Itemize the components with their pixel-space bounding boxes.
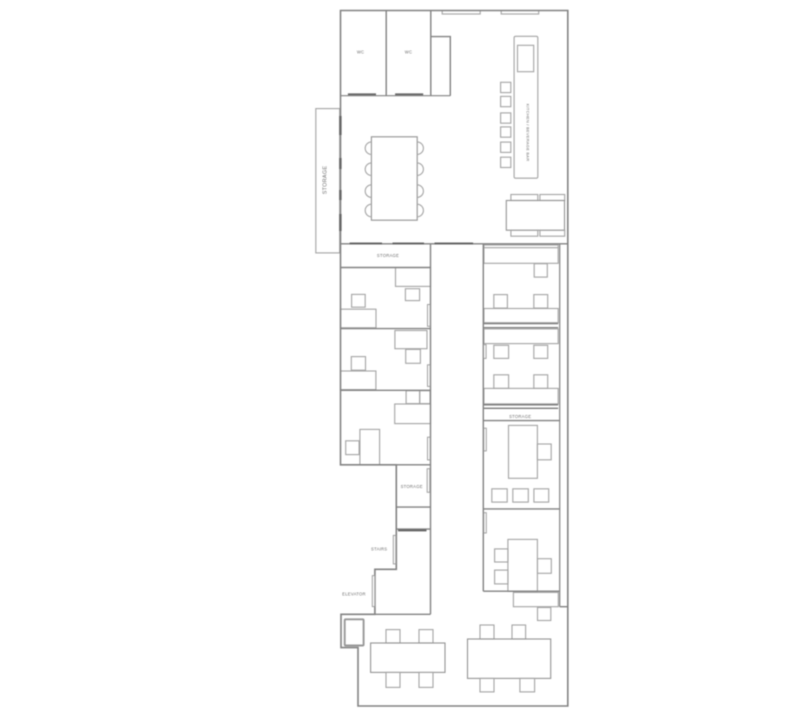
svg-text:KITCHEN / BEVERAGE BAR: KITCHEN / BEVERAGE BAR (526, 104, 531, 162)
svg-text:STORAGE: STORAGE (509, 414, 531, 419)
svg-text:STORAGE: STORAGE (323, 166, 329, 195)
svg-text:WC: WC (405, 49, 412, 54)
svg-text:STORAGE: STORAGE (401, 484, 423, 489)
svg-text:WC: WC (357, 49, 364, 54)
svg-text:ELEVATOR: ELEVATOR (342, 592, 366, 597)
svg-text:STORAGE: STORAGE (377, 253, 399, 258)
svg-text:STAIRS: STAIRS (371, 546, 387, 551)
